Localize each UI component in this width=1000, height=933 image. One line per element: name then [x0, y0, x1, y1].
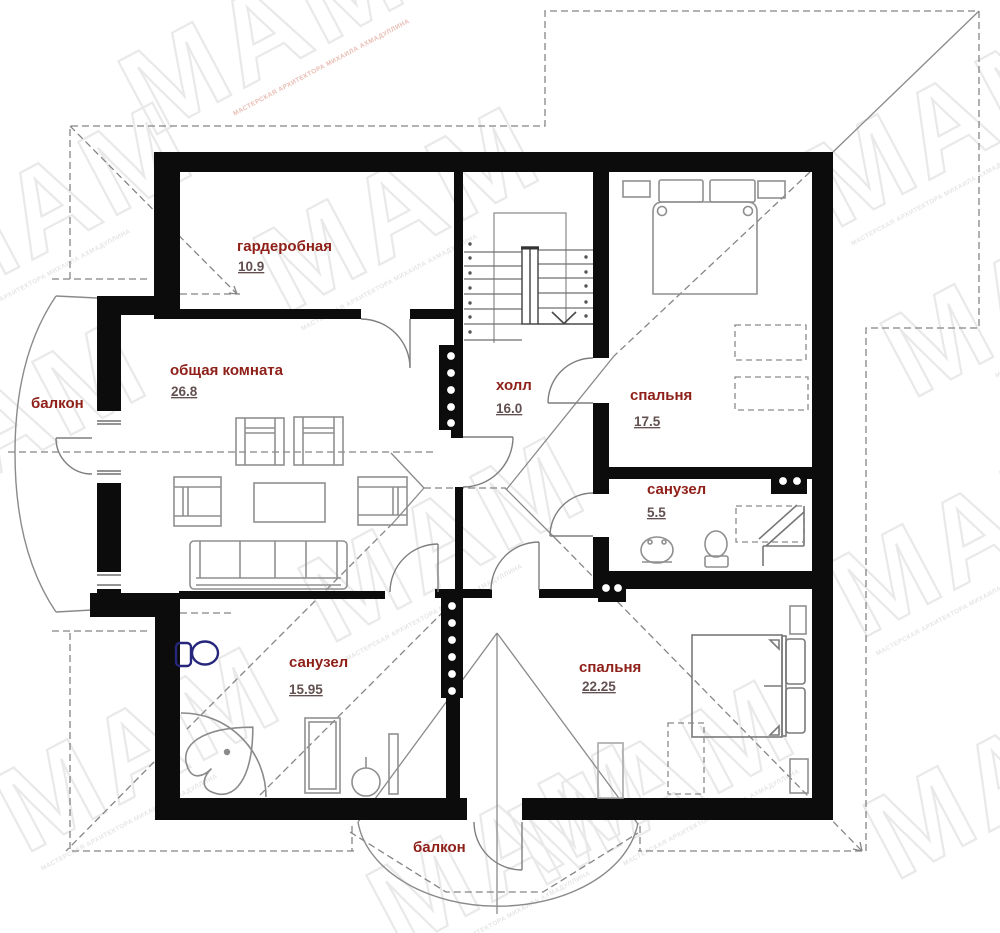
svg-text:10.9: 10.9 [238, 259, 264, 274]
svg-text:15.95: 15.95 [289, 682, 323, 697]
svg-text:общая комната: общая комната [170, 362, 284, 379]
svg-text:балкон: балкон [31, 395, 84, 412]
svg-text:санузел: санузел [289, 654, 348, 671]
svg-text:5.5: 5.5 [647, 505, 666, 520]
svg-text:26.8: 26.8 [171, 384, 198, 399]
svg-text:17.5: 17.5 [634, 414, 661, 429]
svg-text:спальня: спальня [579, 659, 641, 676]
svg-text:спальня: спальня [630, 387, 692, 404]
svg-text:гардеробная: гардеробная [237, 238, 332, 255]
svg-text:санузел: санузел [647, 481, 706, 498]
svg-text:22.25: 22.25 [582, 679, 616, 694]
svg-text:холл: холл [496, 377, 532, 394]
svg-text:16.0: 16.0 [496, 401, 522, 416]
svg-text:балкон: балкон [413, 839, 466, 856]
